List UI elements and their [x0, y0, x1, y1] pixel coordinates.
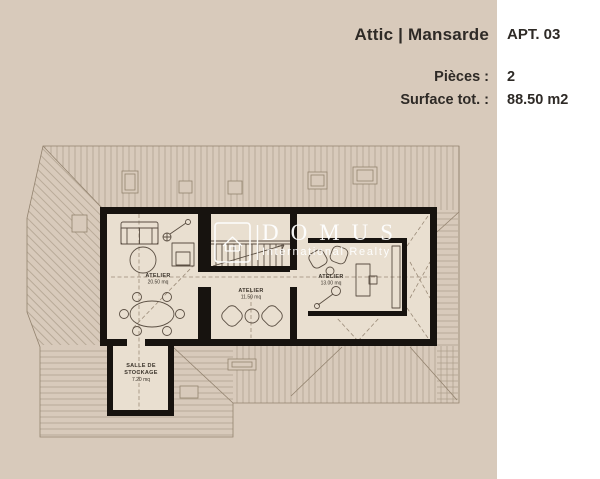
room-area: 11.50 mq [221, 294, 281, 301]
room-label-atelier-3: ATELIER 13.00 mq [301, 273, 361, 287]
surface-label: Surface tot. : [400, 93, 489, 108]
room-area: 7.20 mq [111, 376, 171, 383]
room-name: ATELIER [221, 287, 281, 294]
pieces-value: 2 [507, 70, 515, 85]
room-label-atelier-1: ATELIER 20.50 mq [128, 272, 188, 286]
room-name: ATELIER [128, 272, 188, 279]
room-label-stockage: SALLE DE STOCKAGE 7.20 mq [111, 362, 171, 383]
surface-value: 88.50 m2 [507, 93, 568, 108]
floor-plan-page: DOMUS International Realty ATELIER 20.50… [0, 0, 600, 479]
room-name: ATELIER [301, 273, 361, 280]
room-label-atelier-2: ATELIER 11.50 mq [221, 287, 281, 301]
pieces-label: Pièces : [434, 70, 489, 85]
apartment-number: APT. 03 [507, 27, 560, 42]
room-area: 20.50 mq [128, 279, 188, 286]
room-name: SALLE DE STOCKAGE [122, 362, 161, 376]
page-title: Attic | Mansarde [354, 26, 489, 43]
room-area: 13.00 mq [301, 280, 361, 287]
